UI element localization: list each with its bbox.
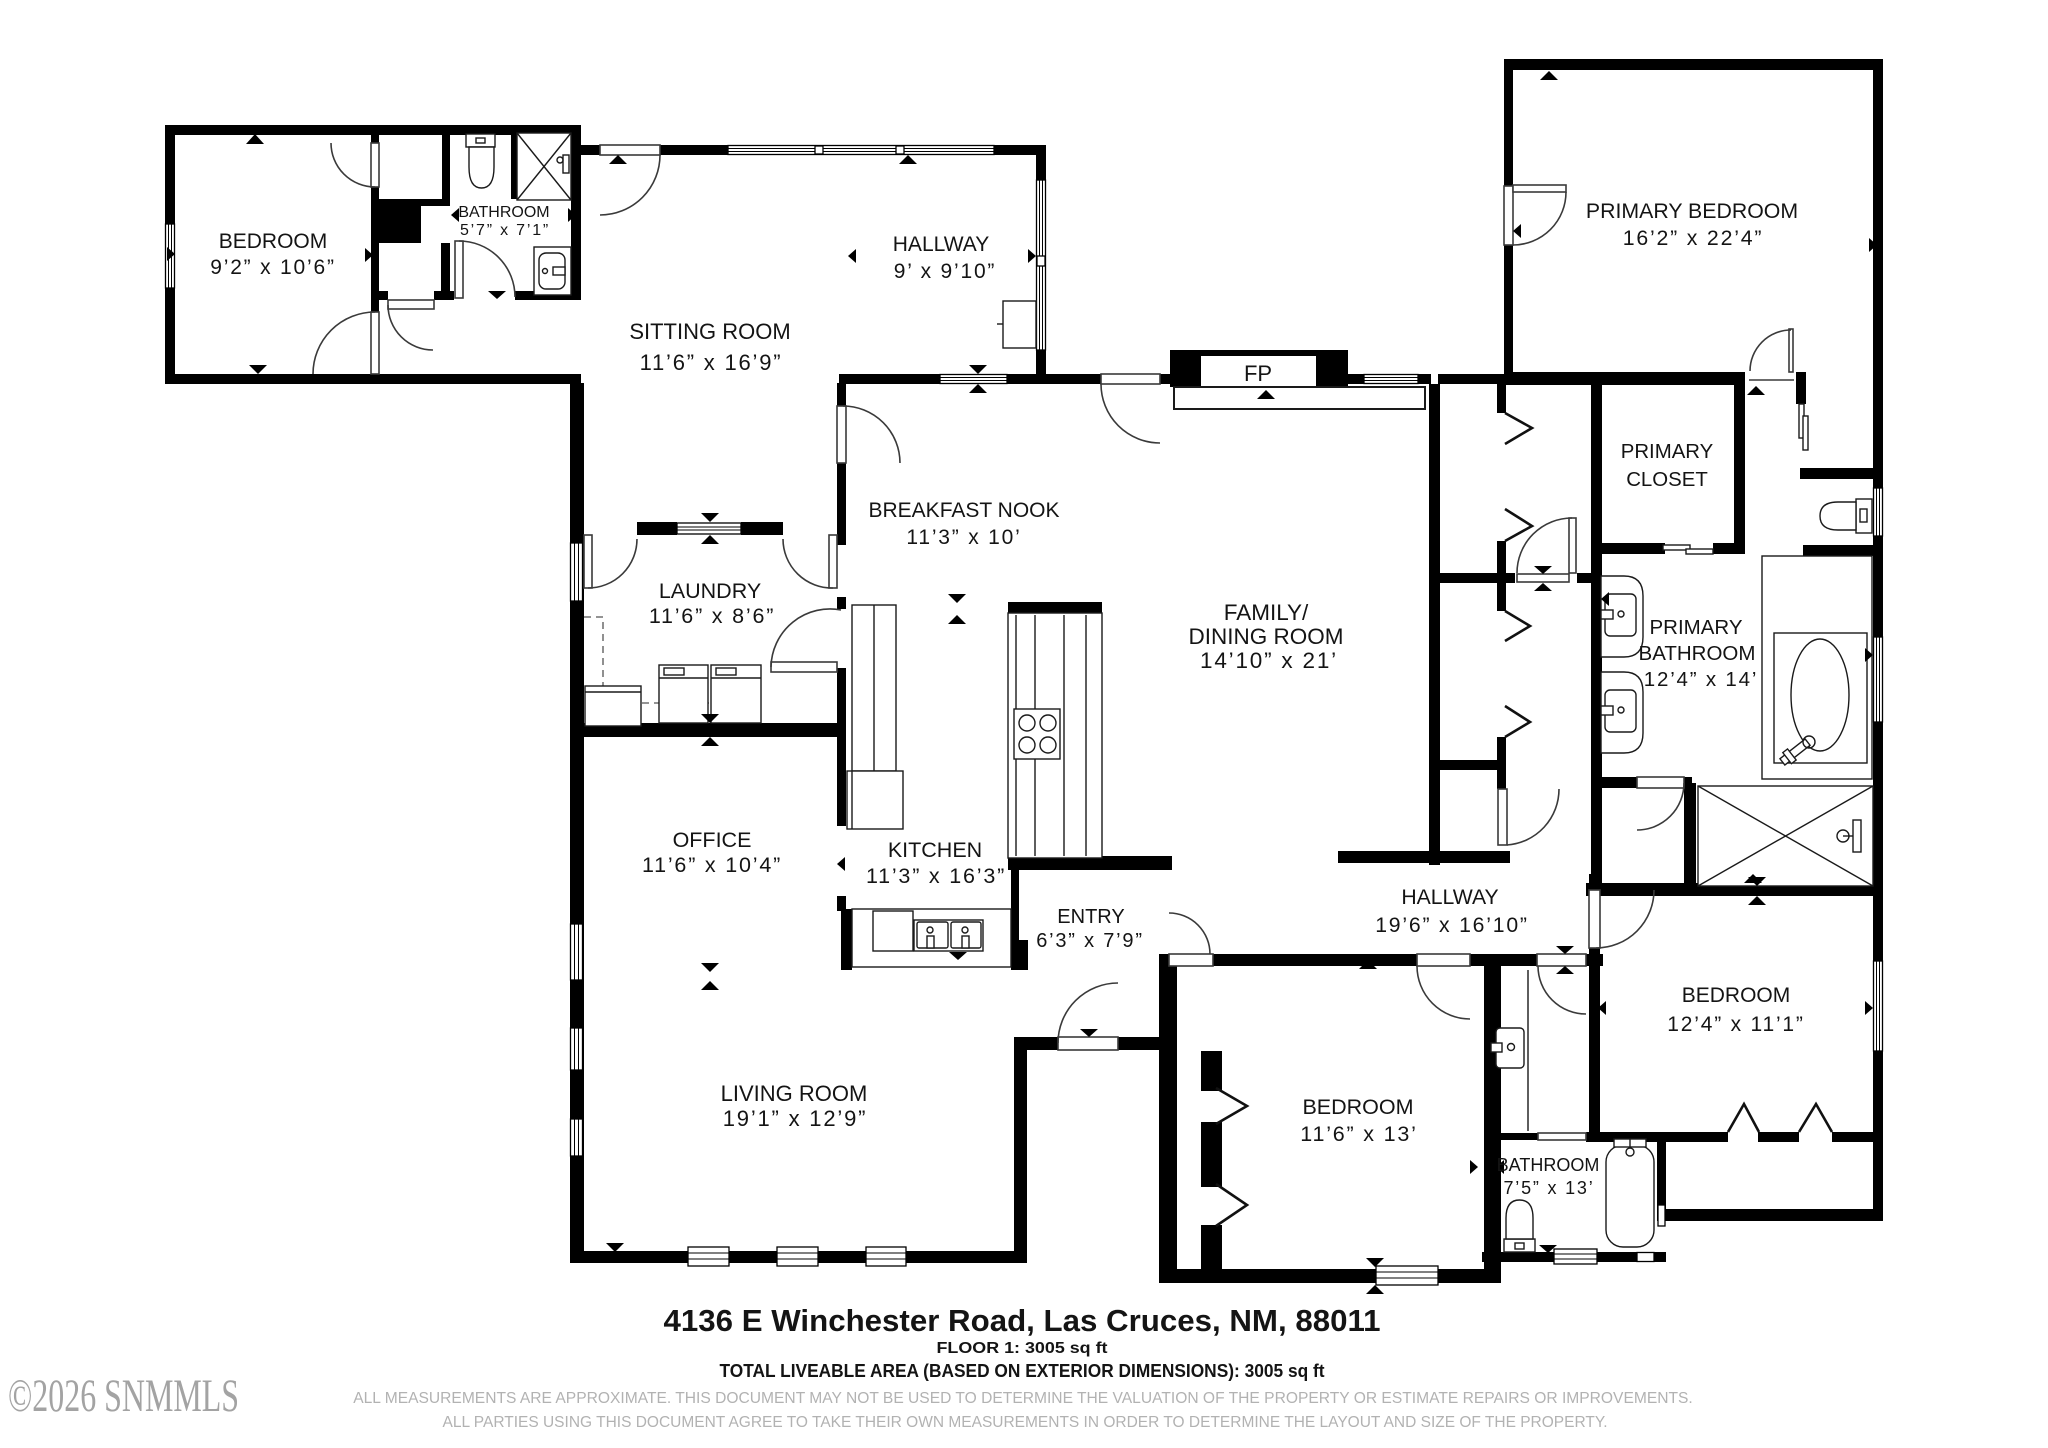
svg-text:16’2” x 22’4”: 16’2” x 22’4” <box>1623 226 1764 250</box>
svg-text:BATHROOM: BATHROOM <box>458 204 549 221</box>
svg-text:DINING ROOM: DINING ROOM <box>1189 624 1344 649</box>
svg-text:TOTAL LIVEABLE AREA (BASED ON: TOTAL LIVEABLE AREA (BASED ON EXTERIOR D… <box>720 1361 1325 1381</box>
svg-text:BEDROOM: BEDROOM <box>1302 1095 1413 1119</box>
svg-text:ALL PARTIES USING THIS DOCUMEN: ALL PARTIES USING THIS DOCUMENT AGREE TO… <box>442 1414 1607 1431</box>
svg-text:BREAKFAST NOOK: BREAKFAST NOOK <box>869 499 1060 522</box>
svg-text:PRIMARY BEDROOM: PRIMARY BEDROOM <box>1586 199 1798 223</box>
svg-text:BATHROOM: BATHROOM <box>1497 1155 1600 1175</box>
svg-text:6’3” x 7’9”: 6’3” x 7’9” <box>1036 930 1144 952</box>
svg-text:19’1” x 12’9”: 19’1” x 12’9” <box>723 1106 867 1131</box>
svg-text:11’6” x 8’6”: 11’6” x 8’6” <box>649 604 775 628</box>
svg-text:FLOOR 1: 3005 sq ft: FLOOR 1: 3005 sq ft <box>937 1340 1109 1357</box>
svg-text:BEDROOM: BEDROOM <box>219 230 328 253</box>
svg-text:12’4” x 14’: 12’4” x 14’ <box>1644 668 1758 691</box>
svg-text:FP: FP <box>1244 361 1272 386</box>
svg-text:11’3” x 16’3”: 11’3” x 16’3” <box>866 864 1006 888</box>
svg-text:9’2” x 10’6”: 9’2” x 10’6” <box>210 256 335 279</box>
svg-text:ENTRY: ENTRY <box>1057 906 1124 928</box>
svg-text:KITCHEN: KITCHEN <box>888 838 982 862</box>
svg-text:SITTING ROOM: SITTING ROOM <box>629 319 790 344</box>
svg-text:BATHROOM: BATHROOM <box>1639 642 1756 665</box>
svg-text:PRIMARY: PRIMARY <box>1649 616 1742 639</box>
svg-text:11’3” x 10’: 11’3” x 10’ <box>906 526 1021 549</box>
svg-text:©2026 SNMMLS: ©2026 SNMMLS <box>8 1369 239 1422</box>
svg-text:LIVING ROOM: LIVING ROOM <box>721 1081 868 1106</box>
svg-text:7’5” x 13’: 7’5” x 13’ <box>1503 1178 1594 1198</box>
svg-text:4136 E Winchester Road, Las Cr: 4136 E Winchester Road, Las Cruces, NM, … <box>664 1303 1381 1338</box>
svg-text:PRIMARY: PRIMARY <box>1621 441 1714 463</box>
svg-text:11’6” x 10’4”: 11’6” x 10’4” <box>642 853 782 877</box>
svg-text:14’10” x 21’: 14’10” x 21’ <box>1200 648 1338 673</box>
svg-text:OFFICE: OFFICE <box>673 828 752 852</box>
svg-text:BEDROOM: BEDROOM <box>1682 984 1791 1007</box>
svg-text:11’6” x 13’: 11’6” x 13’ <box>1300 1122 1417 1146</box>
svg-text:FAMILY/: FAMILY/ <box>1224 600 1309 625</box>
svg-text:12’4” x 11’1”: 12’4” x 11’1” <box>1667 1013 1804 1036</box>
svg-text:5’7” x 7’1”: 5’7” x 7’1” <box>460 222 550 239</box>
svg-text:19’6” x 16’10”: 19’6” x 16’10” <box>1375 914 1529 937</box>
svg-text:HALLWAY: HALLWAY <box>1401 886 1498 909</box>
svg-text:LAUNDRY: LAUNDRY <box>659 579 761 603</box>
svg-text:11’6” x 16’9”: 11’6” x 16’9” <box>640 350 783 375</box>
svg-text:HALLWAY: HALLWAY <box>893 233 989 256</box>
svg-text:CLOSET: CLOSET <box>1626 469 1708 491</box>
svg-text:ALL MEASUREMENTS ARE APPROXIMA: ALL MEASUREMENTS ARE APPROXIMATE. THIS D… <box>353 1390 1693 1407</box>
svg-text:9’ x 9’10”: 9’ x 9’10” <box>894 260 996 283</box>
